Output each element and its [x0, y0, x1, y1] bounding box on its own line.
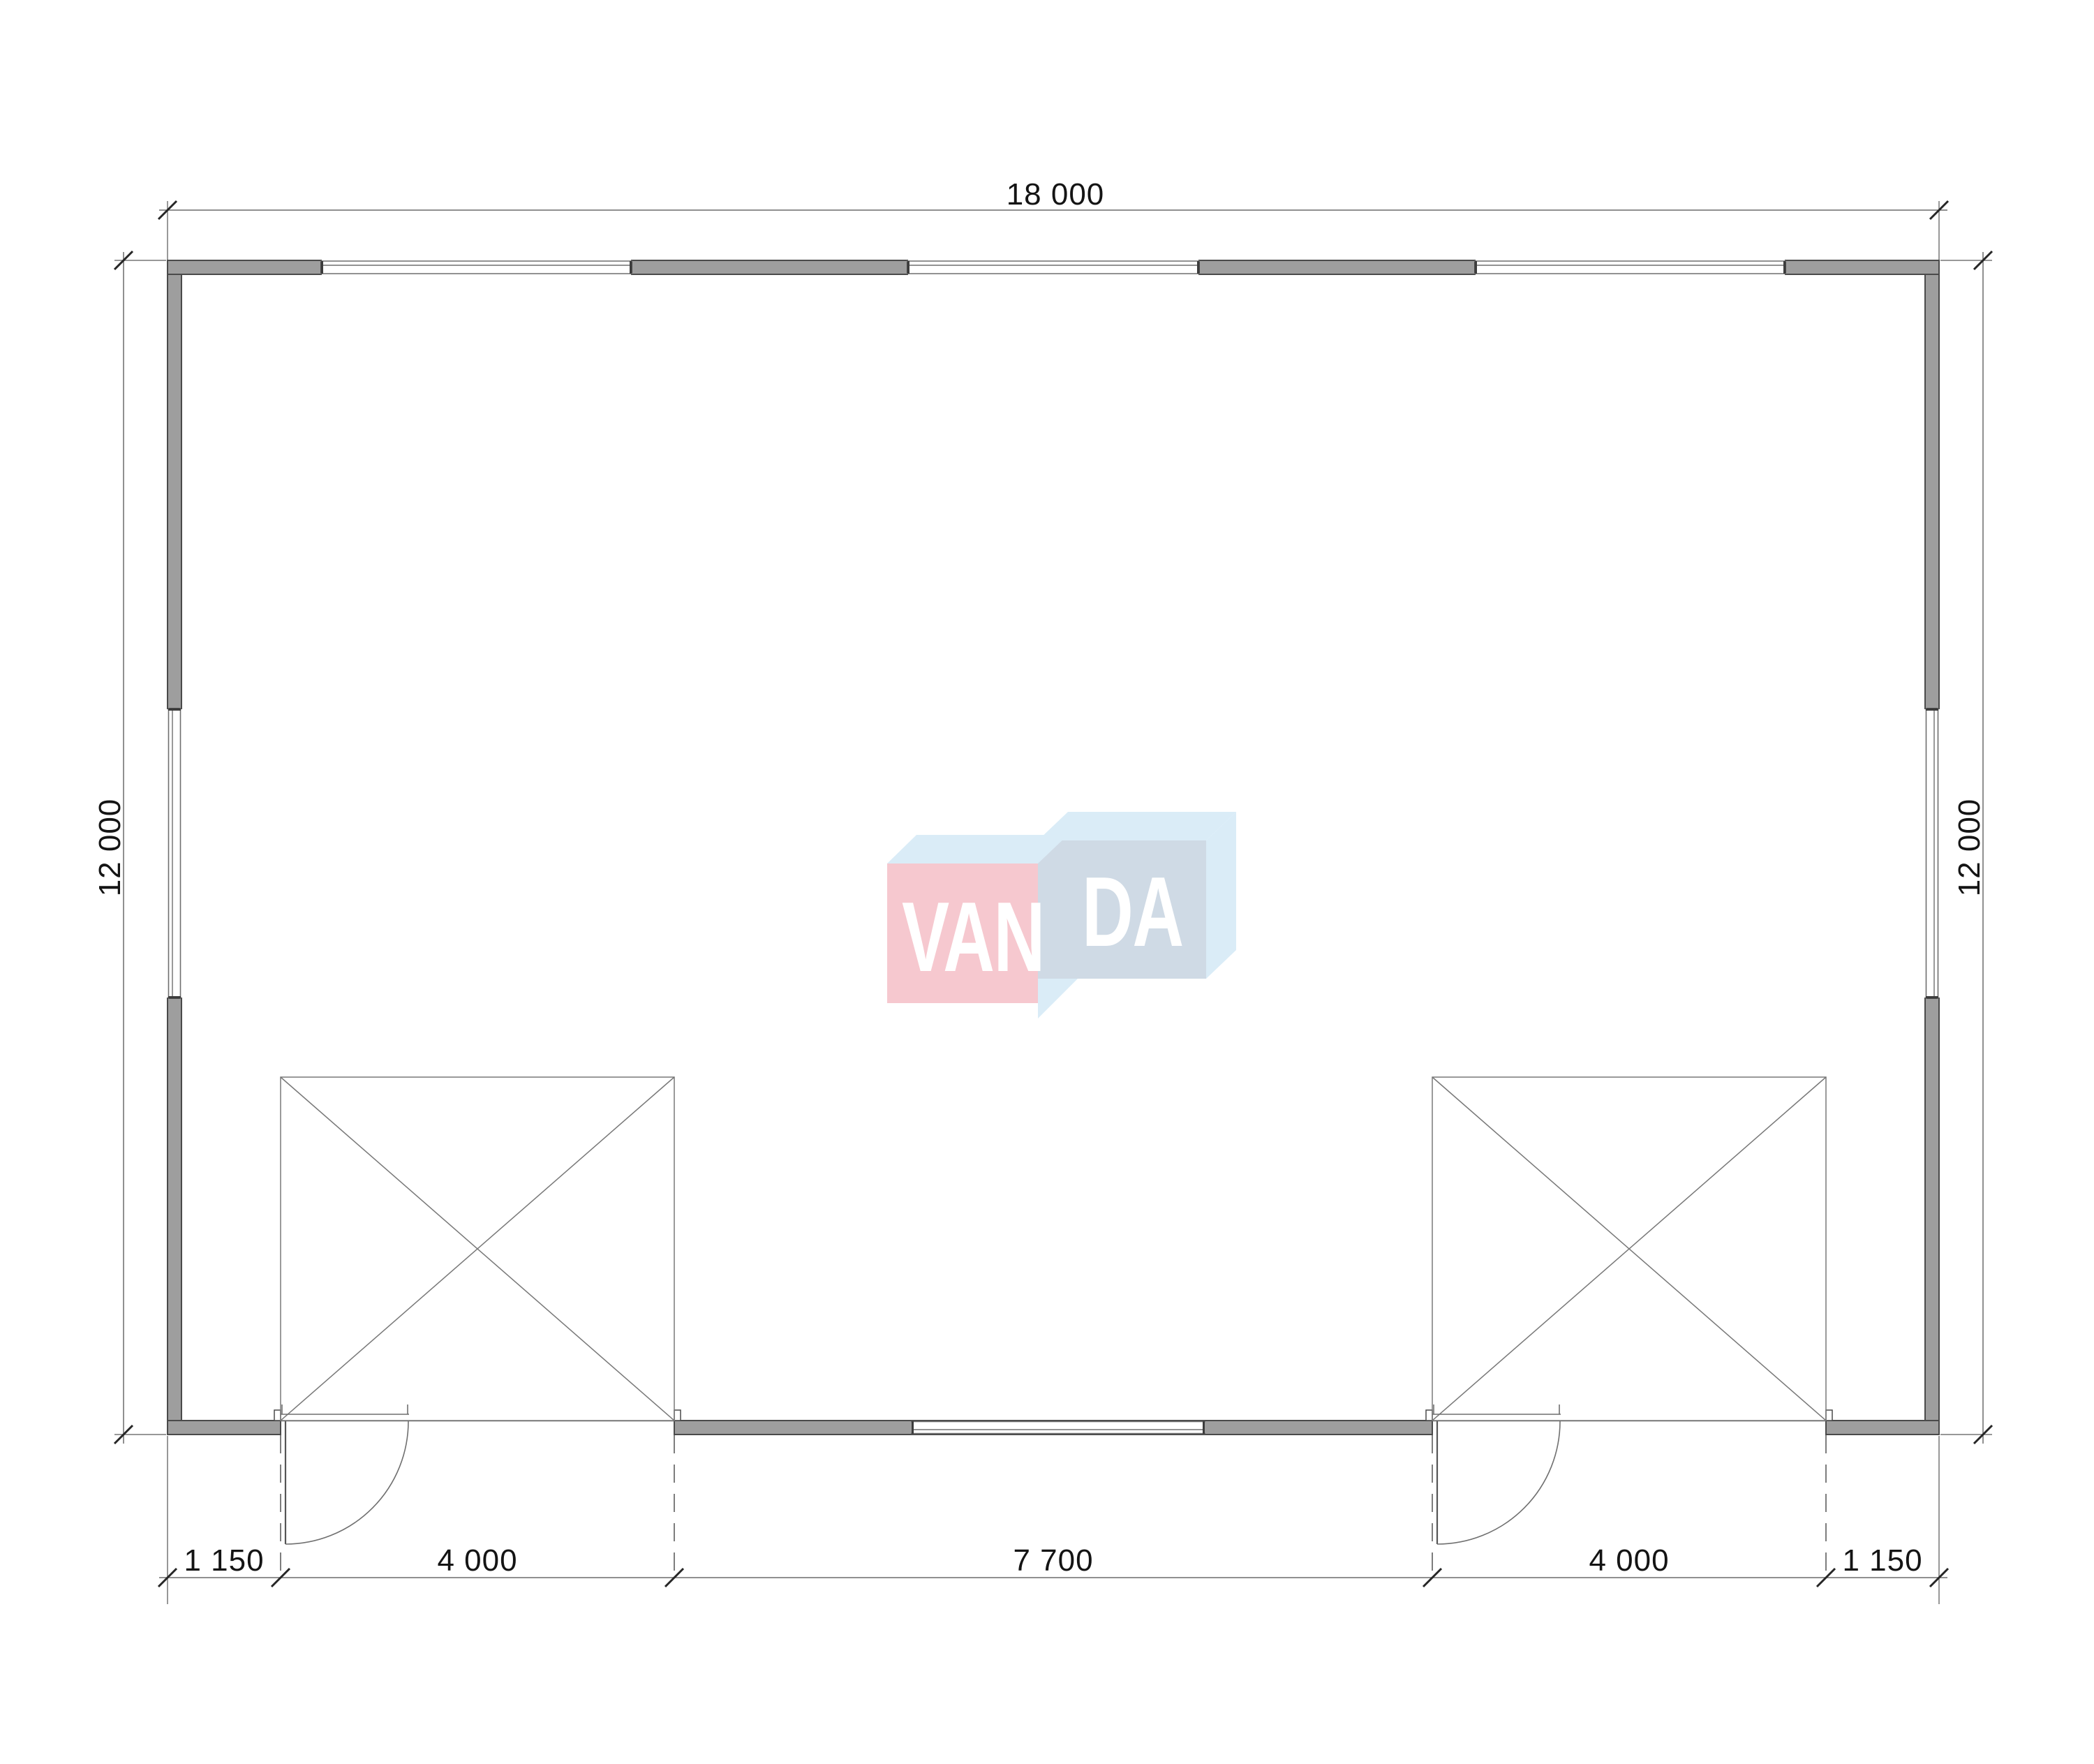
window — [320, 261, 632, 274]
dimension-right: 12 000 — [1940, 251, 1992, 1444]
dimension-bottom: 1 150 4 000 7 700 4 000 1 150 — [158, 1436, 1948, 1604]
dim-label-depth-right: 12 000 — [1952, 799, 1987, 897]
garage-door-panel-right — [1432, 1077, 1826, 1421]
logo-blue-box-right-face — [1206, 812, 1236, 979]
dim-label-overall-width: 18 000 — [1007, 177, 1105, 212]
window — [168, 708, 181, 999]
dim-label-segment: 4 000 — [1589, 1543, 1669, 1578]
window — [907, 261, 1200, 274]
floor-plan-drawing: 18 000 12 000 12 000 — [0, 0, 2094, 1764]
floor-plan-page: 18 000 12 000 12 000 — [0, 0, 2094, 1764]
window — [1474, 261, 1786, 274]
exterior-wall-left — [168, 274, 181, 1421]
logo-text-da: DA — [1082, 857, 1183, 968]
exterior-wall-top — [168, 260, 1939, 274]
window — [1926, 708, 1938, 999]
dimension-top: 18 000 — [158, 177, 1948, 260]
dim-label-segment: 1 150 — [1842, 1543, 1922, 1578]
logo-text-van: VAN — [902, 882, 1044, 993]
vanda-watermark-logo: VAN DA — [887, 812, 1236, 1018]
dim-label-segment: 1 150 — [184, 1543, 264, 1578]
dim-label-segment: 4 000 — [437, 1543, 517, 1578]
dim-label-segment: 7 700 — [1013, 1543, 1093, 1578]
logo-blue-box-top-face — [1038, 812, 1236, 840]
exterior-wall-right — [1925, 274, 1939, 1421]
swing-door-right — [1432, 1404, 1561, 1544]
window — [911, 1421, 1205, 1434]
garage-door-panel-left — [281, 1077, 674, 1421]
dim-label-depth-left: 12 000 — [93, 799, 127, 897]
dimension-left: 12 000 — [93, 251, 166, 1444]
swing-door-left — [281, 1404, 409, 1544]
logo-pink-box-top-face — [887, 835, 1068, 864]
